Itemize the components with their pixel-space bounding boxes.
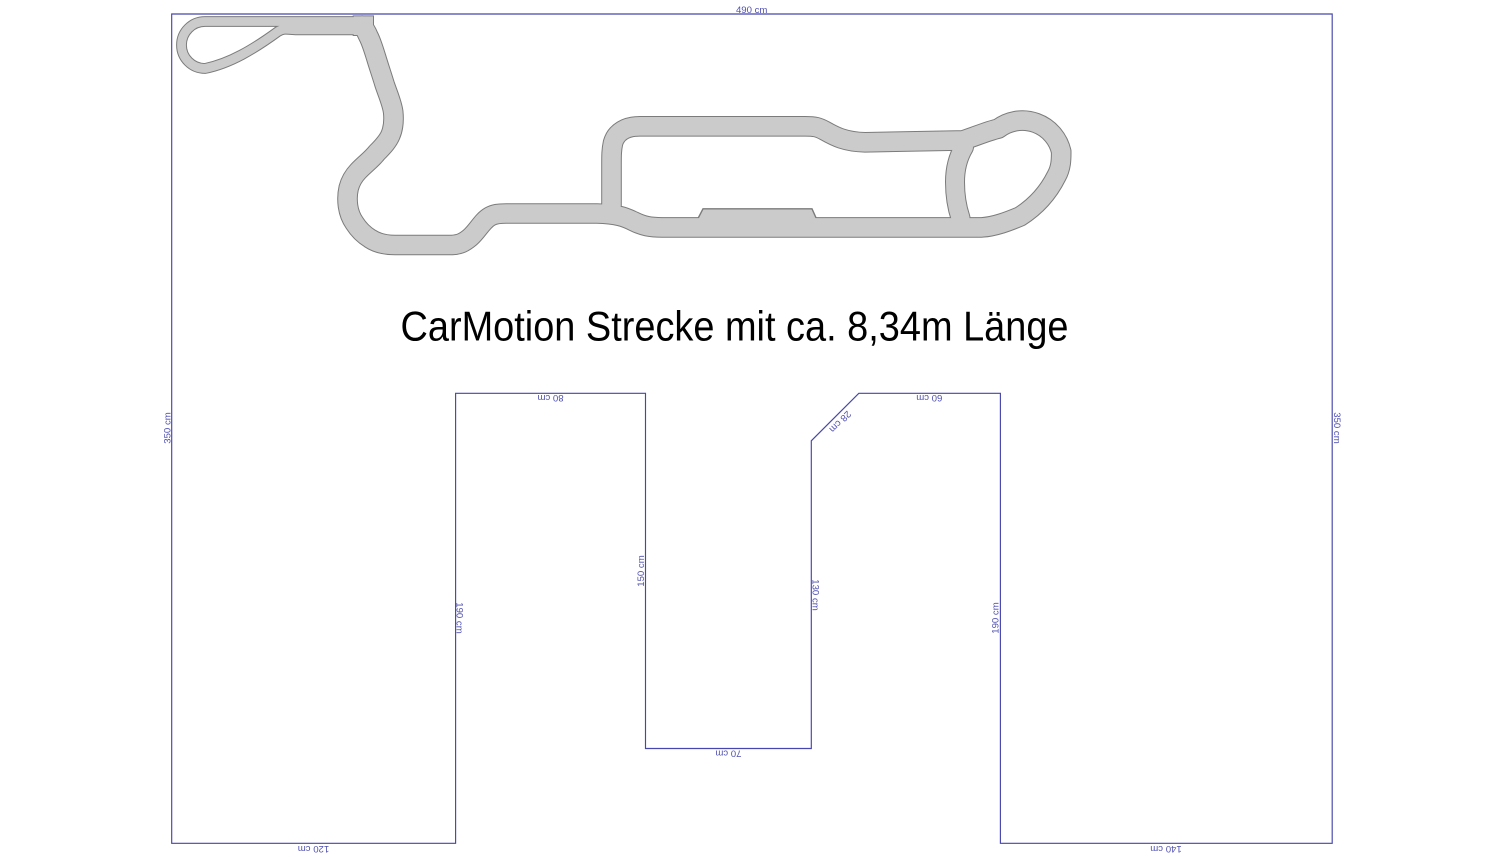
svg-text:190 cm: 190 cm xyxy=(454,602,465,633)
svg-text:490 cm: 490 cm xyxy=(736,5,767,16)
svg-text:190 cm: 190 cm xyxy=(991,602,1002,633)
svg-text:60 cm: 60 cm xyxy=(916,392,942,403)
svg-text:CarMotion Strecke mit ca. 8,34: CarMotion Strecke mit ca. 8,34m Länge xyxy=(401,303,1069,350)
svg-text:150 cm: 150 cm xyxy=(636,555,647,586)
svg-text:120 cm: 120 cm xyxy=(298,843,329,854)
svg-text:80 cm: 80 cm xyxy=(537,392,563,403)
svg-text:130 cm: 130 cm xyxy=(810,579,821,610)
svg-text:350 cm: 350 cm xyxy=(1331,412,1342,443)
svg-text:70 cm: 70 cm xyxy=(715,747,741,758)
svg-text:140 cm: 140 cm xyxy=(1150,843,1181,854)
svg-text:350 cm: 350 cm xyxy=(163,412,174,443)
